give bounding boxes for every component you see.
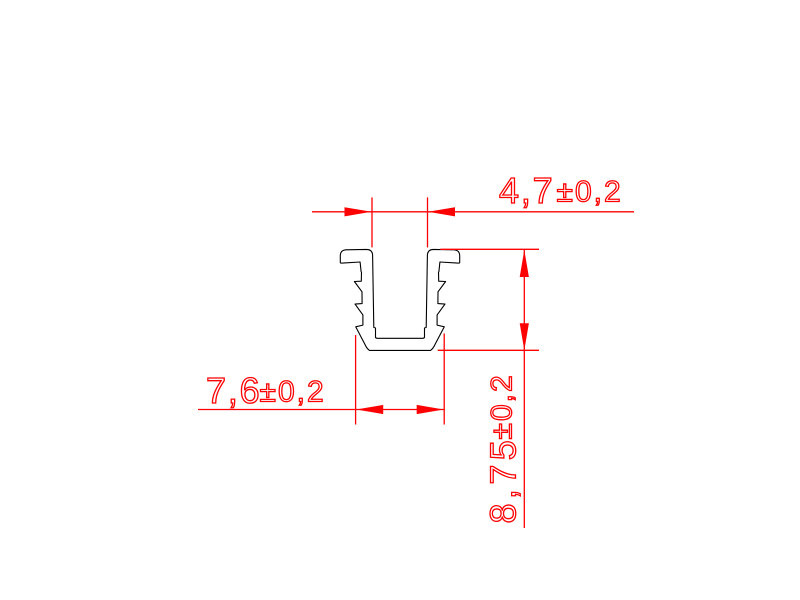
svg-text:±0,2: ±0,2 (260, 376, 326, 409)
svg-text:4,7: 4,7 (499, 170, 554, 211)
svg-text:±0,2: ±0,2 (486, 373, 519, 439)
svg-text:7,6: 7,6 (206, 370, 261, 411)
svg-text:8,75: 8,75 (483, 436, 524, 524)
svg-text:±0,2: ±0,2 (557, 176, 623, 209)
